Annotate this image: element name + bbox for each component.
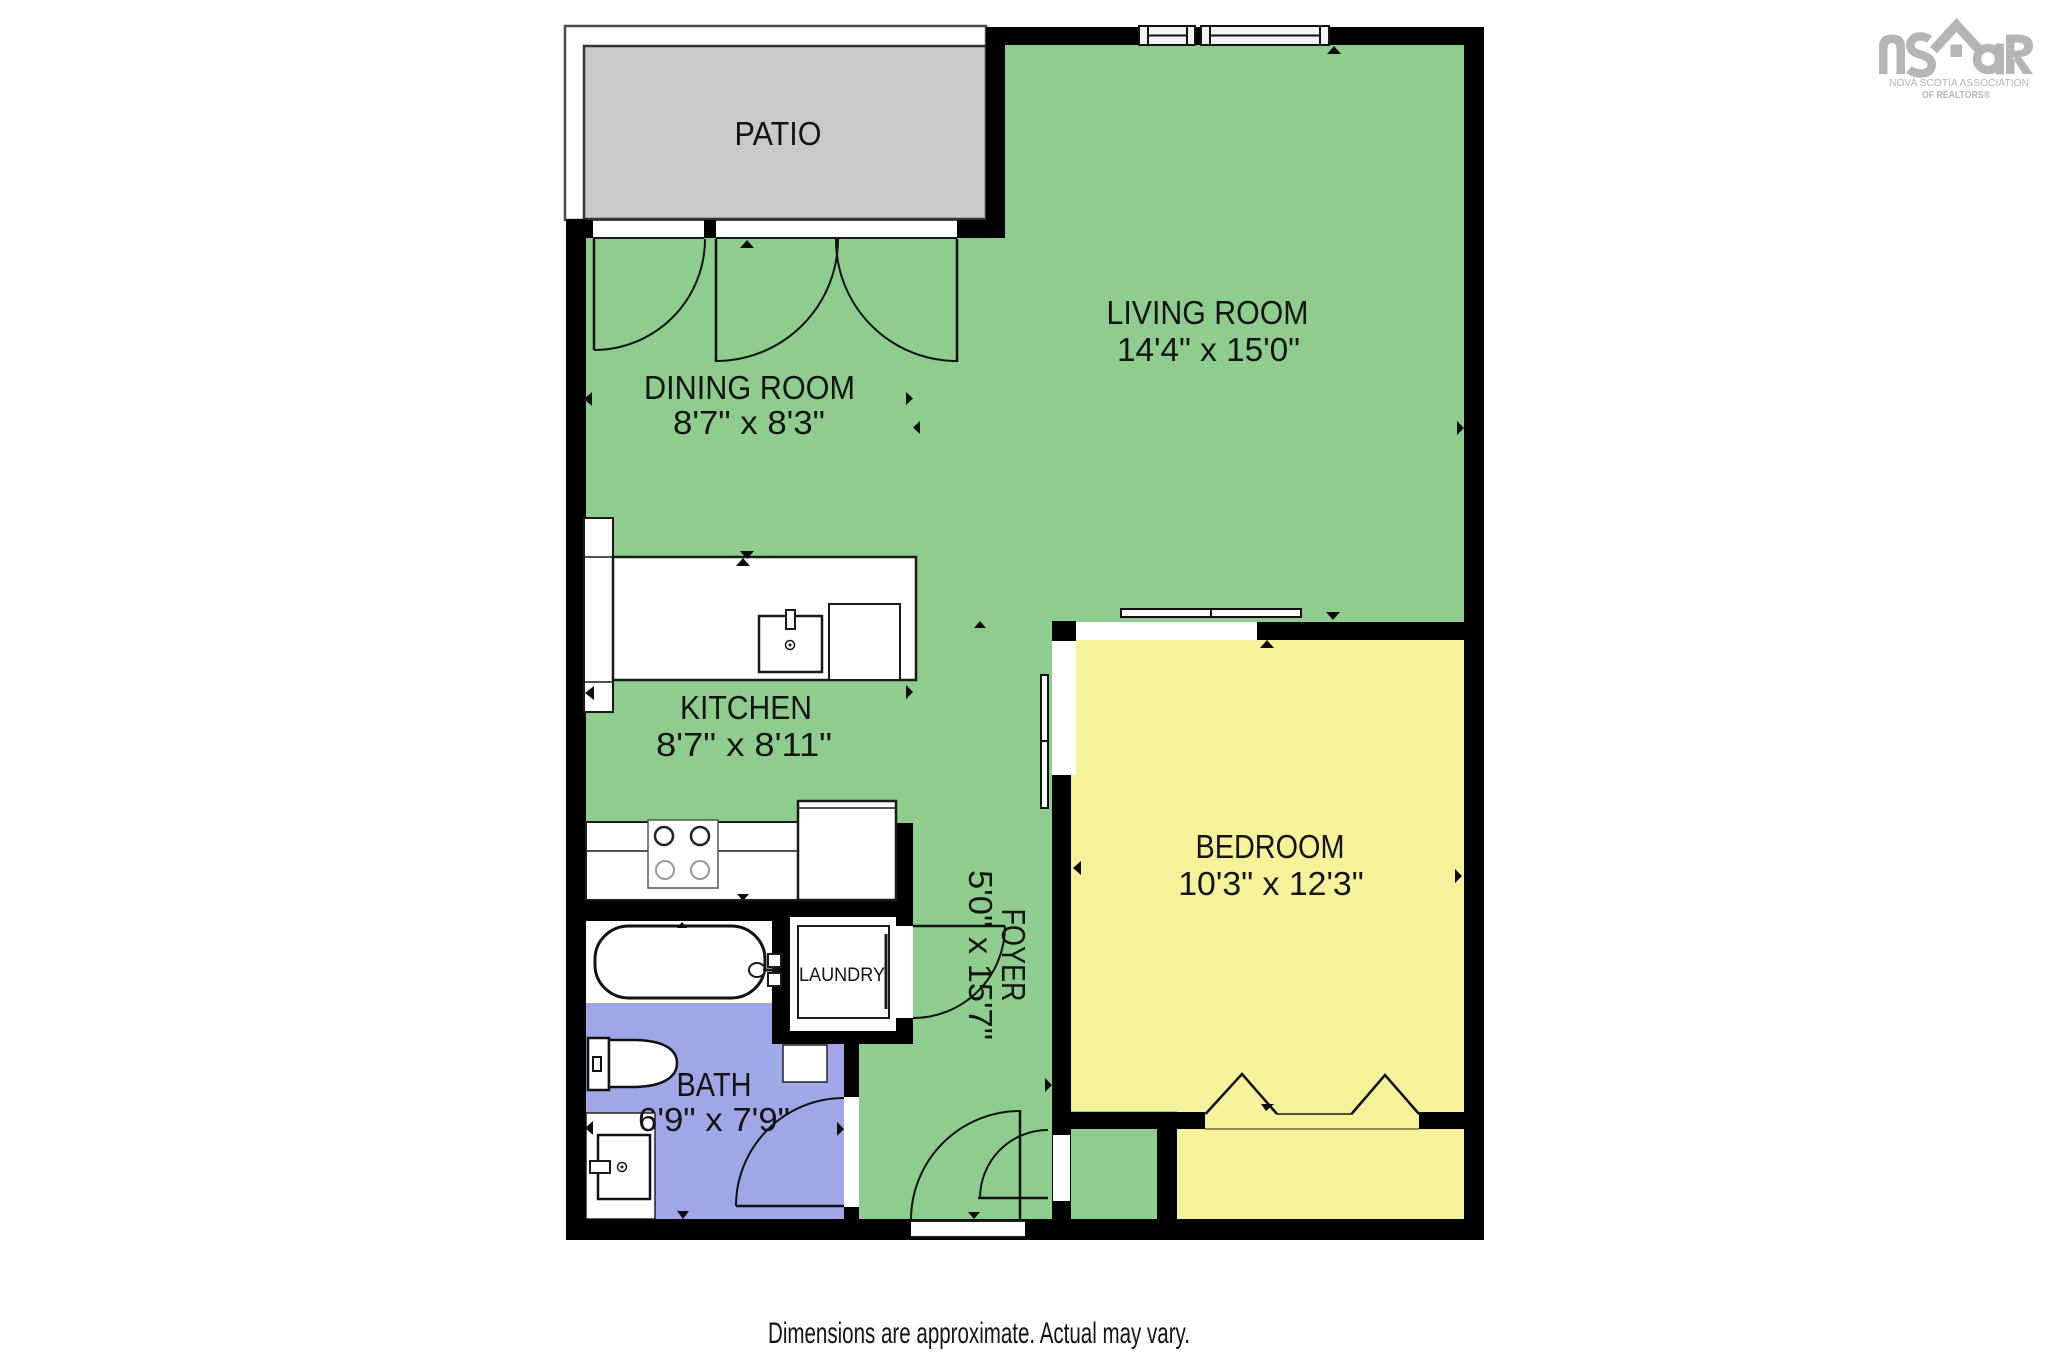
svg-text:5'0" x 15'7": 5'0" x 15'7" — [961, 870, 998, 1040]
svg-text:Dimensions are approximate. Ac: Dimensions are approximate. Actual may v… — [768, 1317, 1190, 1350]
svg-text:BEDROOM: BEDROOM — [1196, 829, 1345, 866]
svg-text:DINING ROOM: DINING ROOM — [644, 370, 855, 407]
svg-text:8'7" x 8'11": 8'7" x 8'11" — [656, 727, 832, 764]
svg-text:14'4" x 15'0": 14'4" x 15'0" — [1117, 332, 1300, 369]
svg-text:FOYER: FOYER — [994, 909, 1031, 1002]
svg-text:NOVA SCOTIA ASSOCIATION: NOVA SCOTIA ASSOCIATION — [1889, 78, 2029, 89]
svg-text:10'3" x 12'3": 10'3" x 12'3" — [1178, 866, 1364, 903]
svg-text:LAUNDRY: LAUNDRY — [799, 965, 885, 986]
svg-text:PATIO: PATIO — [735, 116, 822, 153]
svg-text:KITCHEN: KITCHEN — [680, 690, 812, 727]
svg-text:BATH: BATH — [677, 1067, 752, 1104]
svg-text:OF REALTORS®: OF REALTORS® — [1922, 90, 1991, 101]
svg-text:8'7" x 8'3": 8'7" x 8'3" — [673, 405, 825, 442]
svg-text:LIVING ROOM: LIVING ROOM — [1107, 295, 1309, 332]
svg-text:6'9" x 7'9": 6'9" x 7'9" — [638, 1102, 790, 1139]
